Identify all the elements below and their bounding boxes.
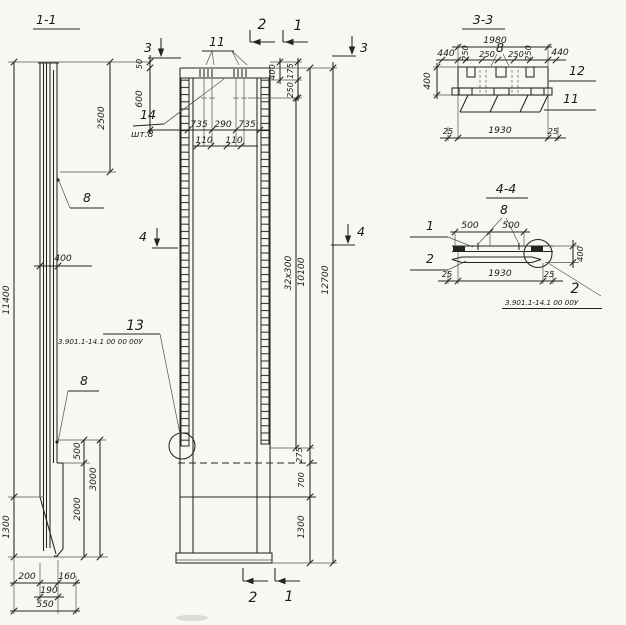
section-marker-1-top: 1 (283, 18, 308, 45)
dim-1930: 1930 (488, 125, 512, 136)
drawing-sheet: 1-1 11400 1300 2500 8 8 (0, 0, 626, 625)
label-8: 8 (500, 202, 508, 217)
dim-400: 400 (422, 72, 433, 90)
dim-250-b: 250 (479, 49, 495, 59)
dim-735-left: 735 (190, 119, 208, 130)
dim-400: 400 (267, 64, 277, 80)
section-marker-4-left: 4 (139, 228, 178, 248)
svg-text:1: 1 (294, 18, 303, 34)
dim-25-right: 25 (544, 269, 554, 279)
label-11: 11 (209, 34, 225, 49)
dim-160: 160 (58, 571, 76, 582)
dim-700: 700 (296, 472, 306, 488)
dim-440-left: 440 (437, 48, 455, 59)
dim-2000: 2000 (72, 497, 83, 521)
dim-110-right: 110 (225, 135, 243, 146)
section-marker-3-right: 3 (332, 36, 368, 56)
dim-25-right: 25 (548, 126, 558, 136)
dim-500-left: 500 (461, 220, 479, 231)
dim-2500: 2500 (96, 106, 107, 130)
dim-10100: 10100 (296, 257, 307, 286)
section-marker-1-bottom: 1 (275, 568, 300, 605)
rebar-label-8-top: 8 (83, 190, 91, 205)
label-13: 13 (126, 318, 144, 334)
rebar-label-8-bottom: 8 (80, 373, 88, 388)
pile-shaft-outline (38, 63, 63, 556)
eraser-smudge (176, 615, 208, 621)
label-ref: 3.901.1-14.1 00 00У (505, 298, 579, 307)
dim-1930: 1930 (488, 268, 512, 279)
label-12: 12 (569, 63, 585, 78)
label-1: 1 (426, 218, 434, 233)
dim-190: 190 (40, 585, 58, 596)
view-section-4-4: 4-4 500 500 8 1 2 400 25 19 (410, 181, 602, 309)
dim-250: 250 (285, 82, 295, 98)
section-marker-4-right: 4 (331, 224, 365, 245)
svg-text:2: 2 (249, 590, 258, 606)
section-marker-2-top: 2 (250, 17, 275, 45)
view-section-3-3: 3-3 1980 440 250 250 8 250 250 440 (422, 12, 596, 141)
dim-25-left: 25 (442, 269, 452, 279)
svg-text:3: 3 (144, 40, 152, 55)
dim-175: 175 (285, 63, 295, 79)
svg-text:4: 4 (357, 224, 365, 239)
view-title: 4-4 (496, 181, 516, 196)
svg-text:1: 1 (285, 589, 294, 605)
view-title: 3-3 (473, 12, 493, 27)
stirrup-band-right (261, 78, 269, 444)
dim-110-left: 110 (195, 135, 213, 146)
dim-11400: 11400 (1, 285, 12, 314)
engineering-drawing: 1-1 11400 1300 2500 8 8 (0, 0, 626, 625)
svg-text:2: 2 (258, 17, 267, 33)
dim-250-c: 250 (508, 49, 524, 59)
view-title: 1-1 (36, 12, 56, 27)
dim-3000: 3000 (88, 467, 99, 491)
dim-1300: 1300 (296, 515, 307, 539)
dim-250-d: 250 (523, 45, 533, 61)
label-13-ref: 3.901.1-14.1 00 00 00У (58, 337, 143, 346)
dim-ties-32x300: 32x300 (283, 256, 294, 291)
dim-500-right: 500 (502, 220, 520, 231)
label-2: 2 (426, 251, 434, 266)
section-4-4-body (452, 240, 553, 268)
label-11: 11 (563, 91, 579, 106)
dim-600: 600 (134, 90, 145, 108)
svg-text:3: 3 (360, 40, 368, 55)
dim-500: 500 (72, 442, 83, 460)
dim-50: 50 (134, 59, 144, 69)
view-elevation: 13 3.901.1-14.1 00 00 00У 3 3 2 1 4 4 2 … (58, 17, 368, 606)
dim-440-right: 440 (551, 47, 569, 58)
dim-250-a: 250 (460, 45, 470, 61)
dim-12700: 12700 (320, 265, 331, 294)
label-14: 14 (140, 107, 156, 122)
label-8: 8 (496, 40, 504, 55)
dim-200: 200 (18, 571, 36, 582)
dim-550: 550 (36, 599, 54, 610)
section-marker-2-bottom: 2 (243, 568, 268, 606)
dim-400: 400 (575, 246, 585, 262)
dim-1300: 1300 (1, 515, 12, 539)
detail-circle-2 (524, 240, 552, 268)
dim-735-right: 735 (238, 119, 256, 130)
dim-275: 275 (294, 447, 304, 463)
dim-25-left: 25 (443, 126, 453, 136)
column-outline (176, 68, 272, 563)
dim-400: 400 (54, 253, 72, 264)
dim-290: 290 (214, 119, 232, 130)
label-2-detail: 2 (571, 281, 580, 297)
view-section-1-1: 1-1 11400 1300 2500 8 8 (1, 12, 150, 614)
svg-text:4: 4 (139, 229, 147, 244)
